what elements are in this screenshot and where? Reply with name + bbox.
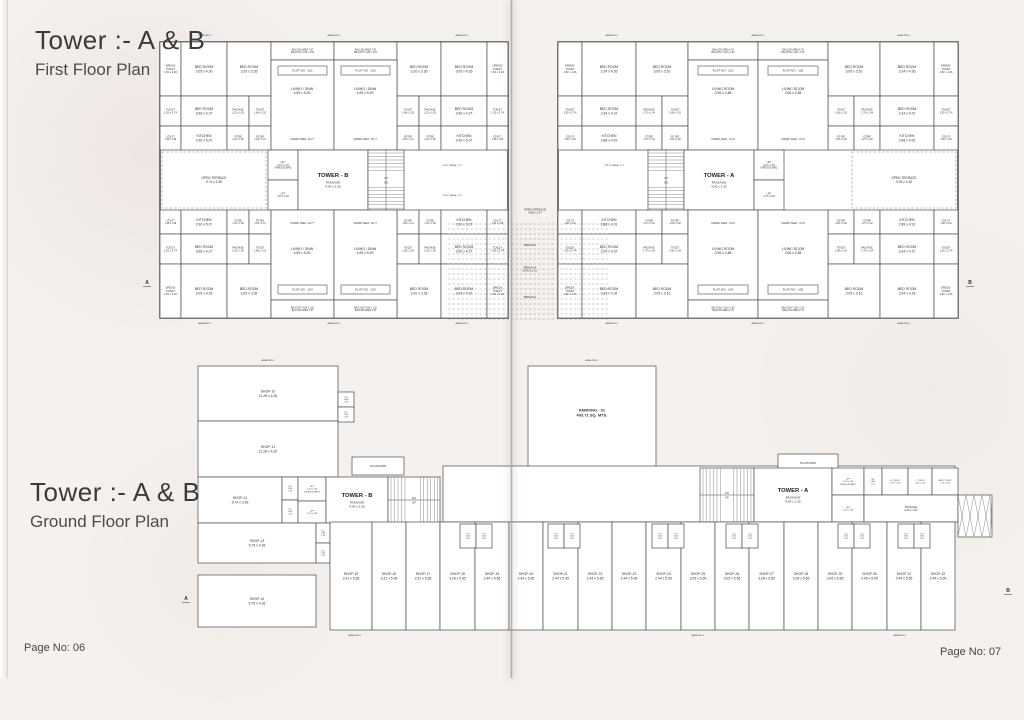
svg-text:1.52 x 4.26: 1.52 x 4.26 bbox=[491, 70, 504, 74]
svg-text:AREA PROJ.: AREA PROJ. bbox=[692, 634, 705, 637]
svg-text:BALCONY 3.28 x 1.50: BALCONY 3.28 x 1.50 bbox=[782, 306, 806, 309]
room-passage: PASSAGE1.79 x 1.04 bbox=[854, 96, 880, 126]
svg-text:3.05 x 3.51: 3.05 x 3.51 bbox=[846, 291, 863, 295]
page-title: Tower :- A & B bbox=[35, 25, 205, 56]
svg-text:3.96 x 4.27: 3.96 x 4.27 bbox=[196, 249, 213, 253]
svg-text:BALCONY 4.88 x 1.52: BALCONY 4.88 x 1.52 bbox=[354, 306, 378, 309]
svg-text:9.75 x 4.26: 9.75 x 4.26 bbox=[249, 601, 266, 605]
room-bed-room: BED ROOM3.34 x 4.26 bbox=[582, 264, 636, 318]
svg-text:9.25 x 3.35: 9.25 x 3.35 bbox=[896, 180, 912, 184]
section-marker-b: B bbox=[966, 280, 974, 287]
svg-text:3.34 x 4.26: 3.34 x 4.26 bbox=[601, 69, 618, 73]
svg-text:(FIRE ESCAPE): (FIRE ESCAPE) bbox=[840, 483, 855, 486]
svg-text:FLAT NO : 104: FLAT NO : 104 bbox=[292, 288, 313, 292]
svg-text:1.79 x 1.04: 1.79 x 1.04 bbox=[861, 249, 873, 252]
svg-text:A: A bbox=[145, 280, 149, 286]
svg-text:BALCONY 3.28 x 1.50: BALCONY 3.28 x 1.50 bbox=[712, 306, 736, 309]
room-balcony-3-28-x-1-50: BALCONY 3.28 x 1.50BALCON.AREA 4.79 bbox=[758, 300, 828, 318]
label-carpet-area-66-77: CARPET AREA - 66.77 bbox=[353, 138, 377, 141]
flat-label-flat-no-104: FLAT NO : 104 bbox=[278, 285, 327, 294]
svg-text:2.44 x 5.65: 2.44 x 5.65 bbox=[587, 576, 604, 580]
svg-text:FLAT NO : 101: FLAT NO : 101 bbox=[292, 69, 313, 73]
svg-text:3.96 x 4.88: 3.96 x 4.88 bbox=[785, 91, 802, 95]
page-subtitle: First Floor Plan bbox=[35, 60, 205, 80]
svg-text:LIFT: LIFT bbox=[281, 193, 286, 195]
svg-text:FLAT NO : 101: FLAT NO : 101 bbox=[713, 69, 734, 73]
svg-text:1.52 x 4.26: 1.52 x 4.26 bbox=[564, 70, 577, 74]
svg-text:1.27 x 1.42: 1.27 x 1.42 bbox=[861, 223, 873, 225]
svg-text:3.05 x 4.26: 3.05 x 4.26 bbox=[456, 291, 473, 295]
svg-text:BALCON.AREA 4.79: BALCON.AREA 4.79 bbox=[712, 48, 734, 51]
room-dress: DRESS-TOILET1.52 x 4.26 bbox=[934, 264, 958, 318]
first-floor-title-block: Tower :- A & B First Floor Plan bbox=[35, 25, 205, 80]
svg-text:11.28 x 4.26: 11.28 x 4.26 bbox=[259, 449, 278, 453]
svg-text:3.05 x 3.51: 3.05 x 3.51 bbox=[846, 69, 863, 73]
room-balcony-4-88-x-1-52: BALCONY 4.88 x 1.52BALCON.AREA 7.97 bbox=[271, 300, 334, 318]
room-passage: PASSAGE1.52 x 1.82 bbox=[227, 234, 249, 264]
room-bed-room: BED ROOM3.20 x 3.35 bbox=[397, 42, 441, 96]
svg-text:1.68 x 2.20: 1.68 x 2.20 bbox=[564, 139, 576, 141]
svg-text:LIFT: LIFT bbox=[767, 193, 772, 195]
room-foyer: FOYER1.83 x 1.41 bbox=[397, 210, 419, 234]
svg-text:TOWER - A: TOWER - A bbox=[704, 173, 735, 179]
open-open-terrace: OPEN TERRACE9.25 x 3.35 bbox=[852, 152, 956, 208]
svg-text:FOYER: FOYER bbox=[671, 136, 679, 138]
svg-text:CARPET AREA - 66.77: CARPET AREA - 66.77 bbox=[290, 222, 314, 225]
svg-text:1.00: 1.00 bbox=[570, 538, 574, 540]
svg-text:3.05 x 5.65: 3.05 x 5.65 bbox=[827, 576, 844, 580]
svg-text:TOWER - B: TOWER - B bbox=[342, 493, 373, 499]
room-bed-room: BED ROOM3.20 x 3.35 bbox=[227, 42, 271, 96]
room-dress: DRESS-TOILET1.52 x 4.26 bbox=[558, 42, 582, 96]
tower-tower-b: TOWER - BPASSAGE9.40 x 2.35 bbox=[298, 150, 368, 210]
room-utility: UTILITY1.68 x 2.20 bbox=[558, 126, 582, 150]
room-lift: LIFT2.13 x 1.63 bbox=[298, 501, 326, 523]
svg-text:3.34 x 4.26: 3.34 x 4.26 bbox=[601, 291, 618, 295]
room-bed-room: BED ROOM3.05 x 4.26 bbox=[181, 264, 227, 318]
svg-text:3.05 x 5.65: 3.05 x 5.65 bbox=[690, 576, 707, 580]
room-lift: LIFT2.13 x 1.63(FIRE ESCAPE) bbox=[832, 468, 864, 495]
room-passage: PASSAGE1.52 x 1.82 bbox=[419, 234, 441, 264]
svg-text:9.40 x 2.35: 9.40 x 2.35 bbox=[349, 505, 365, 509]
room-tol: TOL1.06x1.28 bbox=[316, 523, 330, 543]
svg-text:3.05 x 5.65: 3.05 x 5.65 bbox=[861, 576, 878, 580]
svg-text:3.20 x 3.35: 3.20 x 3.35 bbox=[411, 291, 428, 295]
room-dress: DRESS-TOILET1.52 x 4.26 bbox=[558, 264, 582, 318]
label-living-room: LIVING ROOM3.96 x 4.88 bbox=[782, 247, 805, 255]
svg-text:FLAT NO : 103: FLAT NO : 103 bbox=[355, 288, 376, 292]
room-kitchen: KITCHEN2.90 x 5.07 bbox=[181, 210, 227, 234]
svg-text:FOYER: FOYER bbox=[404, 220, 412, 222]
label-living-dinn: LIVING / DINN4.69 x 5.49 bbox=[354, 87, 377, 95]
svg-text:1.68 x 1.53: 1.68 x 1.53 bbox=[669, 249, 681, 252]
room-bed-room: BED ROOM3.05 x 3.51 bbox=[828, 42, 880, 96]
flat-label-flat-no-101: FLAT NO : 101 bbox=[698, 66, 748, 75]
svg-text:9.40 x 2.35: 9.40 x 2.35 bbox=[325, 185, 341, 189]
svg-text:1.68 x 1.98: 1.68 x 1.98 bbox=[165, 139, 177, 141]
svg-text:2.13 x 1.63: 2.13 x 1.63 bbox=[307, 513, 318, 515]
svg-text:AREA PROJ.: AREA PROJ. bbox=[606, 34, 619, 37]
svg-text:1.68 x 1.98: 1.68 x 1.98 bbox=[492, 139, 504, 141]
room-passage: PASSAGE1.52 x 1.82 bbox=[419, 96, 441, 126]
svg-text:A: A bbox=[184, 596, 188, 602]
room-balcon-area-4-79: BALCON.AREA 4.79BALCONY 3.28 x 1.50 bbox=[758, 42, 828, 60]
svg-text:1.68 x 1.53: 1.68 x 1.53 bbox=[254, 111, 266, 114]
room-store: STORE1.41 x 1.38 bbox=[419, 210, 441, 234]
svg-text:1.28: 1.28 bbox=[344, 416, 348, 418]
label-carpet-area-70-22: CARPET AREA - 70.22 bbox=[781, 138, 805, 141]
svg-text:2.88 x 4.91: 2.88 x 4.91 bbox=[601, 138, 618, 142]
svg-text:BALCON.AREA 7.87: BALCON.AREA 7.87 bbox=[355, 48, 377, 51]
label-area-proj: AREA PROJ. bbox=[898, 34, 911, 37]
room-shop-15: SHOP-153.41 x 5.65 bbox=[330, 522, 372, 630]
room-store: STORE1.41 x 1.38 bbox=[227, 210, 249, 234]
svg-text:UTILITY: UTILITY bbox=[493, 220, 502, 222]
label-living-dinn: LIVING / DINN4.69 x 5.49 bbox=[291, 247, 314, 255]
room-platform: PLATFORM bbox=[352, 457, 404, 475]
room-l-toilet: L. TOILET1.20 x 1.50 bbox=[908, 468, 932, 495]
label-carpet-area-70-22: CARPET AREA - 70.22 bbox=[781, 222, 805, 225]
svg-text:1.68 x 1.53: 1.68 x 1.53 bbox=[254, 249, 266, 252]
flat-label-flat-no-101: FLAT NO : 101 bbox=[278, 66, 327, 75]
svg-text:STORE: STORE bbox=[863, 136, 871, 138]
svg-text:AREA PROJ.: AREA PROJ. bbox=[606, 322, 619, 325]
svg-text:1.68 x 1.53: 1.68 x 1.53 bbox=[402, 249, 414, 252]
svg-text:1.00: 1.00 bbox=[904, 538, 908, 540]
svg-text:2.44 x 5.65: 2.44 x 5.65 bbox=[930, 576, 947, 580]
room-tol: TOL1.06x1.00 bbox=[898, 524, 914, 548]
room-shop-17: SHOP-172.51 x 5.65 bbox=[406, 522, 440, 630]
room-bed-room: BED ROOM3.34 x 4.26 bbox=[880, 42, 934, 96]
room-tol: TOL1.06x1.28 bbox=[338, 392, 354, 407]
tower-tower-a: TOWER - APASSAGE9.40 x 2.35 bbox=[684, 150, 754, 210]
svg-text:3.05 x 4.26: 3.05 x 4.26 bbox=[196, 291, 213, 295]
svg-text:UTILITY AREA - 3.77: UTILITY AREA - 3.77 bbox=[604, 164, 624, 167]
room-utility: UTILITY1.68 x 1.98 bbox=[487, 126, 508, 150]
svg-text:STORE: STORE bbox=[645, 136, 653, 138]
svg-text:FOYER: FOYER bbox=[671, 220, 679, 222]
room-tol: TOL1.06x1.00 bbox=[914, 524, 930, 548]
room-g-toilet: G. TOILET2.79 x 1.50 bbox=[882, 468, 908, 495]
svg-text:2.88 x 4.91: 2.88 x 4.91 bbox=[601, 222, 618, 226]
room-shop-13: SHOP-139.75 x 4.26 bbox=[198, 523, 316, 563]
stairh-dn: DNUP bbox=[388, 477, 440, 523]
room-bed-room: BED ROOM3.05 x 4.26 bbox=[441, 42, 487, 96]
room-utility: UTILITY1.68 x 2.20 bbox=[934, 126, 958, 150]
svg-text:3.05 x 4.26: 3.05 x 4.26 bbox=[456, 69, 473, 73]
svg-text:AREA PROJ.: AREA PROJ. bbox=[752, 322, 765, 325]
svg-text:AREA PROJ.: AREA PROJ. bbox=[898, 322, 911, 325]
svg-text:1.20 x 1.50: 1.20 x 1.50 bbox=[915, 483, 926, 485]
label-living-dinn: LIVING / DINN4.69 x 5.49 bbox=[291, 87, 314, 95]
svg-text:AREA PROJ.: AREA PROJ. bbox=[898, 34, 911, 37]
svg-text:BALCON.AREA 4.79: BALCON.AREA 4.79 bbox=[782, 48, 804, 51]
room-toilet: TOILET1.52 x 2.74 bbox=[934, 234, 958, 264]
svg-text:3.96 x 4.27: 3.96 x 4.27 bbox=[456, 111, 473, 115]
room-foyer: FOYER1.83 x 1.28 bbox=[662, 210, 688, 234]
room-shop-28: SHOP-283.28 x 5.65 bbox=[784, 522, 818, 630]
svg-text:3.05 x 5.65: 3.05 x 5.65 bbox=[724, 576, 741, 580]
svg-text:UP: UP bbox=[664, 176, 668, 180]
room-bed-room: BED ROOM3.05 x 4.26 bbox=[441, 264, 487, 318]
room-bed-room: BED ROOM3.20 x 3.35 bbox=[227, 264, 271, 318]
label-living-room: LIVING ROOM3.96 x 4.88 bbox=[712, 87, 735, 95]
label-carpet-area-70-22: CARPET AREA - 70.22 bbox=[711, 222, 735, 225]
room-kitchen: KITCHEN2.90 x 5.07 bbox=[441, 210, 487, 234]
svg-text:1.52 x 2.74: 1.52 x 2.74 bbox=[940, 110, 953, 114]
svg-text:3.05 x 3.51: 3.05 x 3.51 bbox=[654, 291, 671, 295]
svg-text:1.52 x 2.74: 1.52 x 2.74 bbox=[491, 110, 504, 114]
svg-text:1.00: 1.00 bbox=[920, 538, 924, 540]
room-passage: PASSAGE1.79 x 1.04 bbox=[854, 234, 880, 264]
room-store: STORE1.41 x 1.38 bbox=[227, 126, 249, 150]
svg-text:1.28: 1.28 bbox=[321, 535, 325, 537]
room-dress: DRESS-TOILET1.52 x 4.26 bbox=[934, 42, 958, 96]
room-shop-10: SHOP-1011.28 x 4.26 bbox=[198, 366, 338, 421]
room-kitchen: KITCHEN2.88 x 4.91 bbox=[880, 210, 934, 234]
svg-text:FLAT NO : 102: FLAT NO : 102 bbox=[783, 69, 804, 73]
room-toilet: TOILET1.52 x 2.74 bbox=[160, 96, 181, 126]
svg-text:2.44 x 5.65: 2.44 x 5.65 bbox=[518, 576, 535, 580]
flat-label-flat-no-102: FLAT NO : 102 bbox=[341, 66, 390, 75]
svg-text:1.52 x 1.82: 1.52 x 1.82 bbox=[232, 111, 244, 114]
svg-text:UTILITY AREA - 3.77: UTILITY AREA - 3.77 bbox=[442, 194, 462, 197]
svg-text:1.52 x 1.82: 1.52 x 1.82 bbox=[424, 249, 436, 252]
label-utility-area-3-77: UTILITY AREA - 3.77 bbox=[442, 164, 462, 167]
room-store: STORE1.27 x 1.42 bbox=[854, 126, 880, 150]
svg-text:3.20 x 3.35: 3.20 x 3.35 bbox=[411, 69, 428, 73]
room-tol: TOL1.06x1.00 bbox=[726, 524, 742, 548]
label-living-room: LIVING ROOM3.96 x 4.88 bbox=[782, 87, 805, 95]
svg-text:CARPET AREA - 70.22: CARPET AREA - 70.22 bbox=[781, 138, 805, 141]
svg-text:9.75 x 4.26: 9.75 x 4.26 bbox=[249, 543, 266, 547]
svg-text:AREA PROJ.: AREA PROJ. bbox=[456, 322, 469, 325]
svg-text:3.96 x 4.88: 3.96 x 4.88 bbox=[715, 251, 732, 255]
label-pergola: PERGOLA26.05 sq. mt. bbox=[523, 265, 538, 272]
label-area-proj: AREA PROJ. bbox=[606, 322, 619, 325]
label-area-proj: AREA PROJ. bbox=[262, 359, 275, 362]
room-shop-11: SHOP-1111.28 x 4.26 bbox=[198, 421, 338, 477]
svg-text:1.28: 1.28 bbox=[288, 490, 292, 492]
svg-text:CARPET AREA - 70.22: CARPET AREA - 70.22 bbox=[781, 222, 805, 225]
svg-text:TOWER - B: TOWER - B bbox=[318, 173, 349, 179]
svg-text:3.34 x 4.37: 3.34 x 4.37 bbox=[899, 111, 916, 115]
svg-text:493.71 SQ. MTS.: 493.71 SQ. MTS. bbox=[577, 412, 608, 417]
room-balcon-area-7-87: BALCON.AREA 7.87BALCONY 4.88 x 1.52 bbox=[271, 42, 334, 60]
svg-text:BALCON.AREA 7.97: BALCON.AREA 7.97 bbox=[292, 309, 314, 312]
svg-text:1.50: 1.50 bbox=[871, 483, 875, 485]
room-shop-14: SHOP-149.75 x 4.26 bbox=[198, 575, 316, 627]
svg-text:2.88 x 4.91: 2.88 x 4.91 bbox=[899, 138, 916, 142]
room-passage: PASSAGE1.52 x 1.82 bbox=[227, 96, 249, 126]
room-foyer: FOYER1.83 x 1.28 bbox=[828, 210, 854, 234]
svg-text:1.68 x 2.20: 1.68 x 2.20 bbox=[940, 139, 952, 141]
room-bed-room: BED ROOM3.34 x 4.26 bbox=[582, 42, 636, 96]
flat-label-flat-no-103: FLAT NO : 103 bbox=[768, 285, 818, 294]
svg-text:3.41 x 5.65: 3.41 x 5.65 bbox=[343, 576, 360, 580]
svg-text:1.68 x 1.98: 1.68 x 1.98 bbox=[165, 223, 177, 225]
svg-text:(FIRE ESCAPE): (FIRE ESCAPE) bbox=[275, 167, 292, 170]
svg-text:4.69 x 5.49: 4.69 x 5.49 bbox=[357, 91, 374, 95]
svg-text:1.83 x 1.41: 1.83 x 1.41 bbox=[402, 139, 414, 141]
room-store: STORE1.27 x 1.42 bbox=[636, 126, 662, 150]
svg-text:2.44 x 5.65: 2.44 x 5.65 bbox=[655, 576, 672, 580]
svg-text:STORE: STORE bbox=[426, 220, 434, 222]
room-shop-12: SHOP-129.74 x 3.59 bbox=[198, 477, 282, 523]
svg-text:2.44 x 5.65: 2.44 x 5.65 bbox=[896, 576, 913, 580]
svg-text:UTILITY: UTILITY bbox=[166, 220, 175, 222]
svg-text:UTILITY: UTILITY bbox=[166, 136, 175, 138]
svg-text:FOYER: FOYER bbox=[404, 136, 412, 138]
label-area-proj: AREA PROJ. bbox=[328, 34, 341, 37]
svg-text:1.41 x 1.38: 1.41 x 1.38 bbox=[232, 139, 244, 141]
svg-text:FLAT NO : 104: FLAT NO : 104 bbox=[713, 288, 734, 292]
svg-text:3.28 x 5.65: 3.28 x 5.65 bbox=[793, 576, 810, 580]
svg-text:1.83 x 1.28: 1.83 x 1.28 bbox=[835, 223, 847, 225]
label-area-proj: AREA PROJ. bbox=[606, 34, 619, 37]
label-pergola: PERGOLA bbox=[524, 243, 537, 247]
svg-text:3.34 x 4.26: 3.34 x 4.26 bbox=[899, 291, 916, 295]
svg-text:TOWER - A: TOWER - A bbox=[778, 488, 809, 494]
svg-text:1.28: 1.28 bbox=[321, 555, 325, 557]
svg-text:FOYER: FOYER bbox=[256, 136, 264, 138]
svg-text:STORE: STORE bbox=[234, 220, 242, 222]
room-lift: LIFT2.13 x 1.63(FIRE ESCAPE) bbox=[754, 150, 784, 180]
svg-text:FLAT NO : 103: FLAT NO : 103 bbox=[783, 288, 804, 292]
label-area-proj: AREA PROJ. bbox=[328, 322, 341, 325]
room-dress: DRESS/TOILET1.52 x 4.26 bbox=[487, 42, 508, 96]
svg-text:1.27 x 1.42: 1.27 x 1.42 bbox=[643, 223, 655, 225]
svg-text:11.28 x 4.26: 11.28 x 4.26 bbox=[259, 394, 278, 398]
room-bed-room: BED ROOM3.34 x 4.37 bbox=[582, 234, 636, 264]
room-utility: UTILITY1.68 x 2.20 bbox=[558, 210, 582, 234]
room-tol: TOL1.06x1.00 bbox=[564, 524, 580, 548]
svg-text:AREA PROJ.: AREA PROJ. bbox=[894, 634, 907, 637]
svg-text:1.41 x 1.38: 1.41 x 1.38 bbox=[424, 223, 436, 225]
svg-text:4.69 x 5.49: 4.69 x 5.49 bbox=[294, 91, 311, 95]
open-open-terrace: OPEN TERRACE9.74 x 3.35 bbox=[162, 152, 266, 208]
svg-text:3.96 x 4.27: 3.96 x 4.27 bbox=[456, 249, 473, 253]
svg-text:9.40 x 2.35: 9.40 x 2.35 bbox=[711, 185, 727, 189]
room-toilet: TOILET1.68 x 1.53 bbox=[828, 234, 854, 264]
svg-text:1.00: 1.00 bbox=[482, 538, 486, 540]
svg-text:DN: DN bbox=[384, 181, 388, 185]
room-kitchen: KITCHEN2.90 x 5.07 bbox=[441, 126, 487, 150]
blabel-parking-01: PARKING - 01493.71 SQ. MTS. bbox=[577, 408, 608, 418]
svg-text:BALCON.AREA 7.87: BALCON.AREA 7.87 bbox=[292, 48, 314, 51]
svg-text:2.13 x 1.63: 2.13 x 1.63 bbox=[843, 510, 854, 512]
svg-text:1.79 x 1.04: 1.79 x 1.04 bbox=[643, 249, 655, 252]
svg-text:1.52 x 2.74: 1.52 x 2.74 bbox=[940, 248, 953, 252]
section-marker-a: A bbox=[182, 596, 190, 603]
room-lift: LIFT2.13 x 1.63(FIRE ESCAPE) bbox=[268, 150, 298, 180]
room-passage: PASSAGE1.79 x 1.04 bbox=[636, 234, 662, 264]
svg-text:BALCONY 3.28 x 1.50: BALCONY 3.28 x 1.50 bbox=[712, 51, 736, 54]
svg-text:STORE: STORE bbox=[426, 136, 434, 138]
svg-text:1.83 x 1.28: 1.83 x 1.28 bbox=[835, 139, 847, 141]
room-utility: UTILITY1.68 x 1.98 bbox=[487, 210, 508, 234]
svg-text:1.00: 1.00 bbox=[674, 538, 678, 540]
svg-text:(FIRE ESCAPE): (FIRE ESCAPE) bbox=[761, 167, 778, 170]
svg-text:AREA PROJ.: AREA PROJ. bbox=[199, 322, 212, 325]
room-lift: LIFT2.13 x 1.63 bbox=[268, 180, 298, 210]
svg-text:UTILITY: UTILITY bbox=[493, 136, 502, 138]
svg-text:1.52 x 1.82: 1.52 x 1.82 bbox=[424, 111, 436, 114]
svg-text:2.44 x 5.65: 2.44 x 5.65 bbox=[552, 576, 569, 580]
label-pergola: PERGOLA bbox=[524, 295, 537, 299]
svg-text:1.52 x 4.26: 1.52 x 4.26 bbox=[940, 292, 953, 296]
room-store: STORE1.27 x 1.42 bbox=[636, 210, 662, 234]
page-number-right: Page No: 07 bbox=[940, 646, 1001, 658]
room-foyer: FOYER1.83 x 1.41 bbox=[249, 210, 271, 234]
svg-text:1.52 x 2.74: 1.52 x 2.74 bbox=[564, 110, 577, 114]
room-foyer: FOYER1.83 x 1.28 bbox=[828, 126, 854, 150]
svg-text:1.75 x 1.50: 1.75 x 1.50 bbox=[940, 482, 951, 484]
svg-text:1.00: 1.00 bbox=[748, 538, 752, 540]
svg-text:1.00: 1.00 bbox=[466, 538, 470, 540]
room-toilet: TOILET1.52 x 2.74 bbox=[934, 96, 958, 126]
room-tol: TOL1.06x1.00 bbox=[548, 524, 564, 548]
svg-text:1.68 x 1.53: 1.68 x 1.53 bbox=[835, 111, 847, 114]
label-area-proj: AREA PROJ. bbox=[752, 34, 765, 37]
room-bed-room: BED ROOM3.34 x 4.37 bbox=[880, 234, 934, 264]
svg-text:AREA PROJ.: AREA PROJ. bbox=[752, 34, 765, 37]
svg-text:3.34 x 4.37: 3.34 x 4.37 bbox=[899, 249, 916, 253]
label-area-proj: AREA PROJ. bbox=[456, 34, 469, 37]
svg-text:CARPET AREA - 66.77: CARPET AREA - 66.77 bbox=[353, 138, 377, 141]
section-marker-a: A bbox=[143, 280, 151, 287]
svg-text:1.52 x 2.74: 1.52 x 2.74 bbox=[164, 110, 177, 114]
room-utility: UTILITY1.68 x 2.20 bbox=[934, 210, 958, 234]
page-subtitle: Ground Floor Plan bbox=[30, 512, 200, 532]
room-passage: PASSAGE1.79 x 1.04 bbox=[636, 96, 662, 126]
svg-text:1.28: 1.28 bbox=[344, 401, 348, 403]
room-bed-room: BED ROOM3.34 x 4.37 bbox=[582, 96, 636, 126]
tower-tower-b: TOWER - BPASSAGE9.40 x 2.35 bbox=[326, 477, 388, 523]
svg-text:2.90 x 5.07: 2.90 x 5.07 bbox=[456, 222, 473, 226]
svg-text:UP: UP bbox=[384, 176, 388, 180]
svg-text:1.52 x 2.74: 1.52 x 2.74 bbox=[164, 248, 177, 252]
svg-text:1.83 x 1.28: 1.83 x 1.28 bbox=[669, 223, 681, 225]
svg-text:1.83 x 1.41: 1.83 x 1.41 bbox=[254, 223, 266, 225]
room-bed-room: BED ROOM3.96 x 4.27 bbox=[441, 96, 487, 126]
svg-text:3.34 x 4.37: 3.34 x 4.37 bbox=[601, 249, 618, 253]
svg-text:3.20 x 3.35: 3.20 x 3.35 bbox=[241, 69, 258, 73]
svg-text:FOYER: FOYER bbox=[837, 220, 845, 222]
svg-text:2.90 x 5.07: 2.90 x 5.07 bbox=[456, 138, 473, 142]
room-toilet: TOILET1.52 x 2.74 bbox=[160, 234, 181, 264]
label-area-proj: AREA PROJ. bbox=[752, 322, 765, 325]
page-title: Tower :- A & B bbox=[30, 477, 200, 508]
svg-text:1.83 x 1.41: 1.83 x 1.41 bbox=[402, 223, 414, 225]
room-toilet: TOILET1.68 x 1.53 bbox=[662, 234, 688, 264]
room-kitchen: KITCHEN2.88 x 4.91 bbox=[582, 210, 636, 234]
page-number-left: Page No: 06 bbox=[24, 642, 85, 654]
svg-text:LIFT: LIFT bbox=[767, 162, 772, 164]
room-lift: LIFT2.13 x 1.63 bbox=[832, 495, 864, 522]
svg-text:BALCONY 4.88 x 1.52: BALCONY 4.88 x 1.52 bbox=[291, 51, 315, 54]
svg-text:BALCONY 3.28 x 1.50: BALCONY 3.28 x 1.50 bbox=[782, 51, 806, 54]
room-store: STORE1.41 x 1.38 bbox=[419, 126, 441, 150]
room-foyer: FOYER1.83 x 1.28 bbox=[662, 126, 688, 150]
svg-text:9.74 x 3.59: 9.74 x 3.59 bbox=[232, 500, 249, 504]
svg-text:1.27 x 1.42: 1.27 x 1.42 bbox=[643, 139, 655, 141]
room-tol: TOL1.06x1.00 bbox=[460, 524, 476, 548]
room-toilet: TOILET1.68 x 1.53 bbox=[397, 234, 419, 264]
flat-label-flat-no-104: FLAT NO : 104 bbox=[698, 285, 748, 294]
hatchx-area bbox=[958, 495, 992, 537]
svg-text:PERGOLA: PERGOLA bbox=[524, 243, 537, 247]
